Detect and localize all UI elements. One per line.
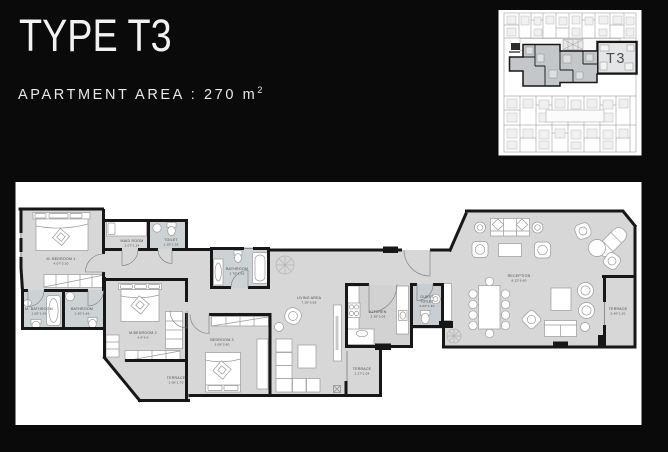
svg-text:TERRACE: TERRACE bbox=[353, 367, 372, 371]
svg-text:TOILET: TOILET bbox=[164, 238, 178, 242]
svg-text:1.08*1.70: 1.08*1.70 bbox=[168, 381, 183, 385]
svg-text:LIVING AREA: LIVING AREA bbox=[297, 296, 322, 300]
svg-text:MAID ROOM: MAID ROOM bbox=[121, 239, 144, 243]
svg-text:BATHROOM: BATHROOM bbox=[226, 267, 248, 271]
svg-text:4.07*3.30: 4.07*3.30 bbox=[53, 262, 68, 266]
svg-text:2.70*1.85: 2.70*1.85 bbox=[229, 272, 244, 276]
svg-text:3.30*3.06: 3.30*3.06 bbox=[370, 315, 385, 319]
svg-text:TERRACE: TERRACE bbox=[609, 307, 628, 311]
svg-text:2.37*1.04: 2.37*1.04 bbox=[354, 372, 369, 376]
svg-text:RECEPTION: RECEPTION bbox=[508, 274, 531, 278]
svg-text:1.60*1.66: 1.60*1.66 bbox=[31, 312, 46, 316]
svg-text:2.07*1.24: 2.07*1.24 bbox=[124, 243, 139, 247]
svg-text:8.22*6.60: 8.22*6.60 bbox=[511, 279, 526, 283]
svg-text:TERRACE: TERRACE bbox=[167, 376, 186, 380]
svg-text:M. BEDROOM 1: M. BEDROOM 1 bbox=[47, 257, 76, 261]
svg-text:3.40*1.30: 3.40*1.30 bbox=[610, 312, 625, 316]
svg-text:2.00*1.40: 2.00*1.40 bbox=[419, 304, 434, 308]
svg-text:KITCHEN: KITCHEN bbox=[369, 310, 386, 314]
svg-text:T3: T3 bbox=[606, 51, 626, 67]
svg-text:1.10*1.28: 1.10*1.28 bbox=[163, 242, 178, 246]
svg-text:BEDROOM 3: BEDROOM 3 bbox=[210, 338, 233, 342]
svg-text:GUEST: GUEST bbox=[420, 295, 434, 299]
svg-text:4.0*4.0: 4.0*4.0 bbox=[137, 336, 148, 340]
svg-text:M.BEDROOM 2: M.BEDROOM 2 bbox=[129, 331, 157, 335]
svg-text:7.30*3.65: 7.30*3.65 bbox=[301, 301, 316, 305]
svg-text:M. BATHROOM: M. BATHROOM bbox=[25, 307, 53, 311]
svg-text:3.08*3.80: 3.08*3.80 bbox=[214, 343, 229, 347]
svg-text:BATHROOM: BATHROOM bbox=[71, 307, 93, 311]
svg-text:TOILET: TOILET bbox=[420, 300, 434, 304]
svg-text:1.30*1.66: 1.30*1.66 bbox=[74, 312, 89, 316]
